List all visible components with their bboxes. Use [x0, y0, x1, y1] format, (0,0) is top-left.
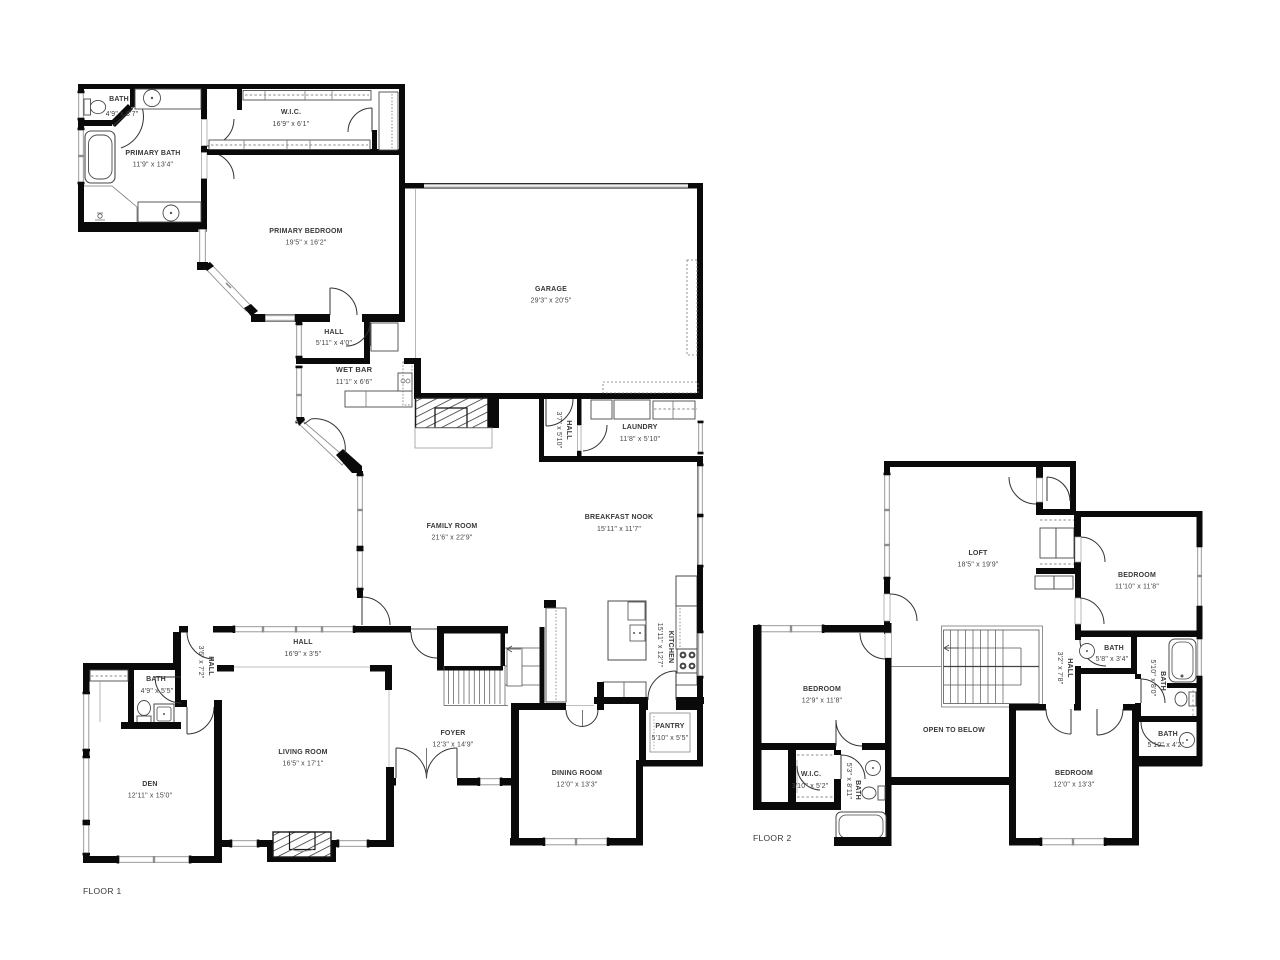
svg-text:12'11" x 15'0": 12'11" x 15'0" — [128, 793, 173, 800]
svg-text:OPEN TO BELOW: OPEN TO BELOW — [923, 727, 985, 734]
svg-text:4'9" x 5'5": 4'9" x 5'5" — [141, 688, 174, 695]
svg-text:LIVING ROOM: LIVING ROOM — [278, 749, 327, 756]
svg-text:HALL: HALL — [324, 329, 344, 336]
svg-text:DINING ROOM: DINING ROOM — [552, 770, 602, 777]
svg-text:BEDROOM: BEDROOM — [803, 686, 841, 693]
svg-text:18'5" x 19'9": 18'5" x 19'9" — [958, 562, 999, 569]
svg-text:3'10" x 5'2": 3'10" x 5'2" — [792, 783, 829, 790]
svg-text:3'6" x 7'2": 3'6" x 7'2" — [197, 646, 204, 679]
svg-text:GARAGE: GARAGE — [535, 286, 567, 293]
svg-text:5'10" x 5'5": 5'10" x 5'5" — [652, 735, 689, 742]
svg-text:19'5" x 16'2": 19'5" x 16'2" — [286, 240, 327, 247]
svg-text:12'0" x 13'3": 12'0" x 13'3" — [1054, 782, 1095, 789]
svg-text:11'1" x 6'6": 11'1" x 6'6" — [336, 379, 373, 386]
svg-text:W.I.C.: W.I.C. — [281, 109, 301, 116]
svg-text:5'3" x 8'11": 5'3" x 8'11" — [845, 763, 852, 800]
svg-text:KITCHEN: KITCHEN — [667, 631, 674, 664]
svg-text:BATH: BATH — [1158, 731, 1178, 738]
svg-text:15'11" x 11'7": 15'11" x 11'7" — [597, 526, 641, 533]
svg-text:BATH: BATH — [1104, 645, 1124, 652]
svg-text:BATH: BATH — [1159, 671, 1166, 691]
svg-text:DEN: DEN — [142, 781, 157, 788]
svg-text:12'3" x 14'9": 12'3" x 14'9" — [433, 742, 474, 749]
svg-text:FAMILY ROOM: FAMILY ROOM — [427, 523, 478, 530]
svg-text:5'11" x 4'0": 5'11" x 4'0" — [316, 340, 353, 347]
svg-text:HALL: HALL — [565, 420, 572, 440]
svg-text:W.I.C.: W.I.C. — [801, 771, 821, 778]
svg-text:BREAKFAST NOOK: BREAKFAST NOOK — [585, 514, 654, 521]
svg-text:29'3" x 20'5": 29'3" x 20'5" — [531, 298, 572, 305]
svg-text:FLOOR 1: FLOOR 1 — [83, 886, 121, 896]
svg-text:BATH: BATH — [109, 96, 129, 103]
svg-text:HALL: HALL — [1066, 658, 1073, 678]
svg-text:LAUNDRY: LAUNDRY — [622, 424, 657, 431]
svg-text:11'8" x 5'10": 11'8" x 5'10" — [620, 436, 661, 443]
svg-text:15'11" x 12'7": 15'11" x 12'7" — [656, 623, 663, 668]
svg-text:BEDROOM: BEDROOM — [1118, 572, 1156, 579]
svg-text:HALL: HALL — [293, 639, 313, 646]
svg-text:11'9" x 13'4": 11'9" x 13'4" — [133, 162, 174, 169]
svg-text:FOYER: FOYER — [440, 730, 465, 737]
svg-text:LOFT: LOFT — [968, 550, 988, 557]
svg-text:WET BAR: WET BAR — [336, 365, 373, 374]
svg-text:3'7" x 5'10": 3'7" x 5'10" — [555, 412, 562, 449]
svg-text:PANTRY: PANTRY — [655, 723, 684, 730]
svg-text:PRIMARY BATH: PRIMARY BATH — [125, 150, 180, 157]
svg-text:5'10" x 8'0": 5'10" x 8'0" — [1149, 660, 1156, 697]
svg-text:FLOOR 2: FLOOR 2 — [753, 833, 791, 843]
svg-text:16'9" x 6'1": 16'9" x 6'1" — [273, 121, 310, 128]
svg-text:5'8" x 3'4": 5'8" x 3'4" — [1096, 656, 1129, 663]
svg-text:4'9" x 3'7": 4'9" x 3'7" — [106, 111, 139, 118]
svg-text:12'0" x 13'3": 12'0" x 13'3" — [557, 782, 598, 789]
svg-text:16'9" x 3'5": 16'9" x 3'5" — [285, 651, 322, 658]
svg-text:BATH: BATH — [146, 676, 166, 683]
svg-text:HALL: HALL — [207, 656, 214, 676]
svg-text:3'2" x 7'8": 3'2" x 7'8" — [1056, 652, 1063, 685]
svg-text:11'10" x 11'8": 11'10" x 11'8" — [1115, 584, 1159, 591]
svg-text:PRIMARY BEDROOM: PRIMARY BEDROOM — [269, 228, 342, 235]
svg-text:21'6" x 22'9": 21'6" x 22'9" — [432, 535, 473, 542]
svg-text:16'5" x 17'1": 16'5" x 17'1" — [283, 761, 324, 768]
svg-text:5'10" x 4'2": 5'10" x 4'2" — [1148, 742, 1185, 749]
svg-text:12'9" x 11'8": 12'9" x 11'8" — [802, 698, 843, 705]
svg-text:BATH: BATH — [854, 780, 861, 800]
svg-text:BEDROOM: BEDROOM — [1055, 770, 1093, 777]
